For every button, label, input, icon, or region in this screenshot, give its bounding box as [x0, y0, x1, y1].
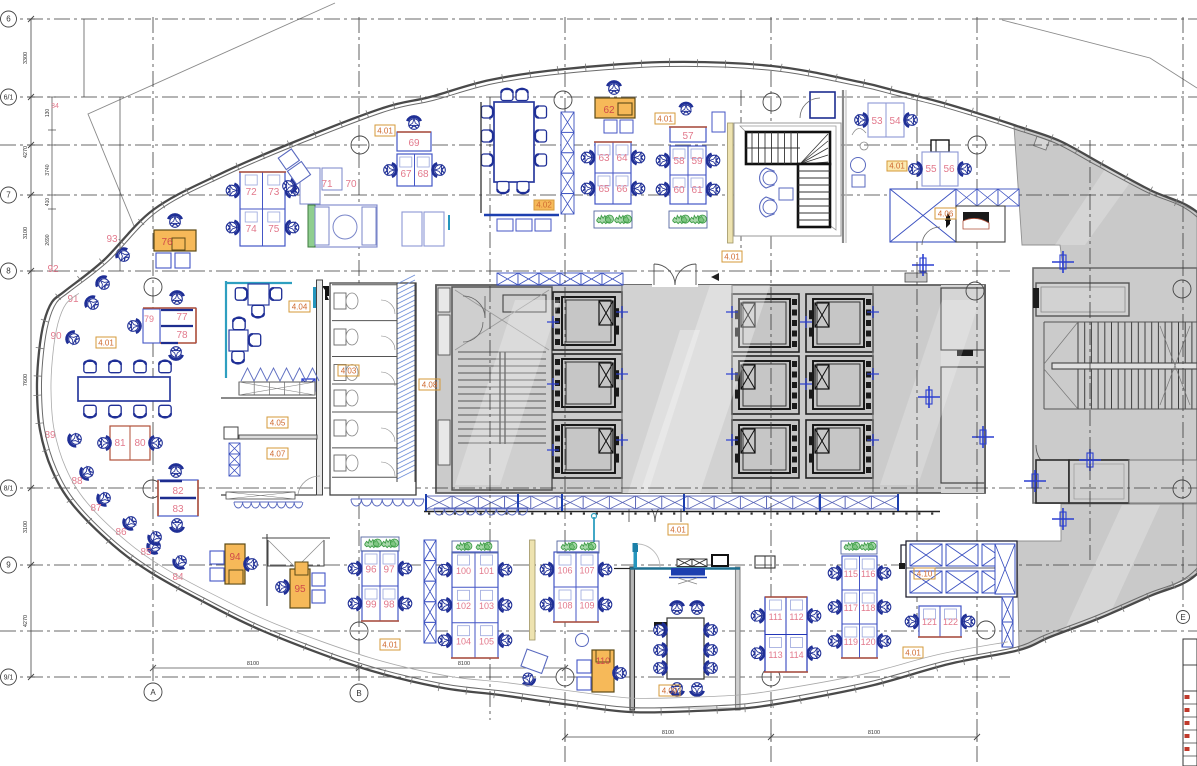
svg-text:111: 111 — [769, 612, 783, 622]
svg-text:97: 97 — [383, 565, 395, 576]
svg-text:A: A — [150, 688, 156, 697]
svg-text:4.10: 4.10 — [917, 570, 933, 579]
svg-text:100: 100 — [456, 566, 471, 576]
svg-text:79: 79 — [144, 314, 154, 324]
svg-text:117: 117 — [844, 603, 858, 613]
svg-text:71: 71 — [321, 179, 333, 190]
svg-text:94: 94 — [229, 552, 241, 563]
svg-text:77: 77 — [176, 312, 188, 323]
svg-text:130: 130 — [45, 109, 51, 118]
svg-text:103: 103 — [479, 601, 494, 611]
svg-text:120: 120 — [861, 637, 876, 647]
svg-text:3300: 3300 — [23, 52, 29, 64]
svg-text:58: 58 — [673, 156, 685, 167]
svg-text:98: 98 — [383, 600, 395, 611]
svg-text:59: 59 — [691, 156, 703, 167]
svg-text:4.01: 4.01 — [377, 127, 393, 136]
svg-text:8100: 8100 — [247, 661, 259, 667]
svg-text:68: 68 — [417, 169, 429, 180]
svg-text:8100: 8100 — [458, 661, 470, 667]
svg-text:109: 109 — [579, 601, 594, 611]
svg-text:B: B — [356, 689, 361, 698]
svg-text:83: 83 — [172, 504, 184, 515]
svg-text:4.03: 4.03 — [341, 367, 357, 376]
svg-text:104: 104 — [456, 637, 471, 647]
svg-text:76: 76 — [161, 237, 173, 248]
svg-text:34: 34 — [51, 103, 59, 110]
svg-text:112: 112 — [789, 612, 803, 622]
svg-text:69: 69 — [408, 138, 420, 149]
svg-text:75: 75 — [268, 224, 280, 235]
svg-text:66: 66 — [616, 184, 628, 195]
svg-text:2690: 2690 — [45, 234, 51, 245]
svg-text:3100: 3100 — [23, 227, 29, 239]
svg-text:116: 116 — [861, 569, 875, 579]
svg-text:115: 115 — [844, 569, 858, 579]
svg-text:102: 102 — [456, 601, 471, 611]
svg-text:93: 93 — [106, 234, 118, 245]
svg-text:63: 63 — [598, 153, 610, 164]
svg-text:4.01: 4.01 — [905, 649, 921, 658]
svg-text:9/1: 9/1 — [4, 675, 14, 682]
svg-text:53: 53 — [871, 116, 883, 127]
svg-text:70: 70 — [345, 179, 357, 190]
svg-text:4.01: 4.01 — [657, 115, 673, 124]
svg-text:4.08: 4.08 — [422, 381, 438, 390]
svg-text:62: 62 — [603, 105, 615, 116]
svg-text:96: 96 — [365, 565, 377, 576]
svg-text:6: 6 — [6, 15, 11, 24]
svg-text:4.05: 4.05 — [270, 419, 286, 428]
svg-text:118: 118 — [861, 603, 875, 613]
svg-text:4.04: 4.04 — [292, 303, 308, 312]
svg-text:88: 88 — [71, 476, 83, 487]
svg-text:99: 99 — [365, 600, 377, 611]
svg-text:65: 65 — [598, 184, 610, 195]
svg-text:4.06: 4.06 — [938, 210, 954, 219]
svg-text:4.01: 4.01 — [889, 162, 905, 171]
svg-text:4.01: 4.01 — [382, 641, 398, 650]
svg-text:72: 72 — [246, 187, 258, 198]
svg-text:64: 64 — [616, 153, 628, 164]
svg-text:67: 67 — [400, 169, 412, 180]
svg-text:9: 9 — [6, 561, 11, 570]
svg-text:82: 82 — [172, 486, 184, 497]
svg-text:60: 60 — [673, 185, 685, 196]
svg-text:8/1: 8/1 — [4, 486, 14, 493]
svg-text:7600: 7600 — [23, 374, 29, 386]
svg-text:113: 113 — [768, 650, 782, 660]
svg-text:110: 110 — [596, 656, 610, 666]
svg-text:119: 119 — [844, 637, 858, 647]
svg-text:E: E — [1180, 613, 1185, 622]
svg-text:4.07: 4.07 — [270, 450, 286, 459]
svg-text:122: 122 — [943, 617, 958, 627]
svg-text:95: 95 — [294, 584, 306, 595]
svg-text:4270: 4270 — [23, 146, 29, 158]
svg-text:61: 61 — [691, 185, 703, 196]
svg-text:92: 92 — [47, 264, 59, 275]
svg-text:4.01: 4.01 — [98, 339, 114, 348]
svg-text:106: 106 — [557, 566, 572, 576]
svg-text:57: 57 — [682, 131, 694, 142]
svg-text:81: 81 — [114, 438, 126, 449]
svg-text:80: 80 — [134, 438, 146, 449]
svg-text:4270: 4270 — [23, 615, 29, 627]
svg-text:8100: 8100 — [662, 730, 674, 736]
svg-text:4.01: 4.01 — [724, 253, 740, 262]
svg-text:7: 7 — [6, 191, 11, 200]
svg-text:3100: 3100 — [23, 521, 29, 533]
svg-text:73: 73 — [268, 187, 280, 198]
svg-text:91: 91 — [67, 294, 79, 305]
svg-text:410: 410 — [45, 198, 51, 207]
svg-text:101: 101 — [479, 566, 494, 576]
svg-text:6/1: 6/1 — [4, 95, 14, 102]
svg-text:108: 108 — [557, 601, 572, 611]
svg-text:8: 8 — [6, 267, 11, 276]
svg-text:78: 78 — [176, 330, 188, 341]
svg-text:121: 121 — [922, 617, 937, 627]
svg-text:56: 56 — [943, 164, 955, 175]
svg-text:3740: 3740 — [45, 164, 51, 175]
svg-text:4.02: 4.02 — [536, 201, 552, 210]
svg-text:8100: 8100 — [868, 730, 880, 736]
svg-text:55: 55 — [925, 164, 937, 175]
svg-text:114: 114 — [789, 650, 803, 660]
svg-text:4.01: 4.01 — [670, 526, 686, 535]
svg-text:4.09: 4.09 — [662, 687, 678, 696]
svg-text:74: 74 — [246, 224, 258, 235]
svg-text:54: 54 — [889, 116, 901, 127]
svg-text:107: 107 — [579, 566, 594, 576]
svg-text:105: 105 — [479, 637, 494, 647]
